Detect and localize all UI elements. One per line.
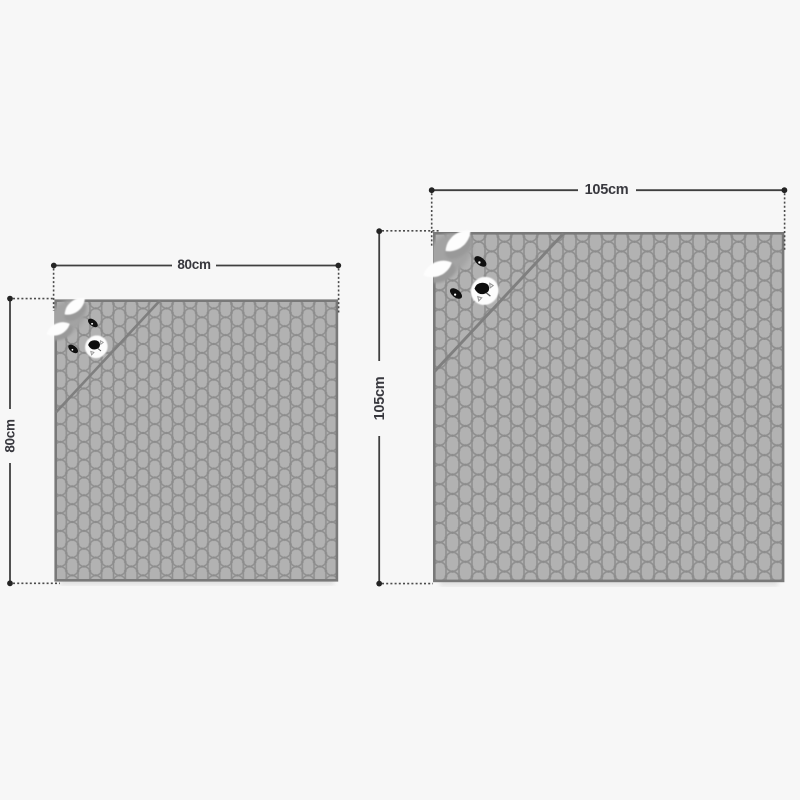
svg-text:105cm: 105cm bbox=[372, 377, 388, 421]
svg-text:80cm: 80cm bbox=[177, 257, 211, 272]
svg-text:105cm: 105cm bbox=[585, 182, 629, 198]
svg-text:80cm: 80cm bbox=[3, 419, 18, 453]
